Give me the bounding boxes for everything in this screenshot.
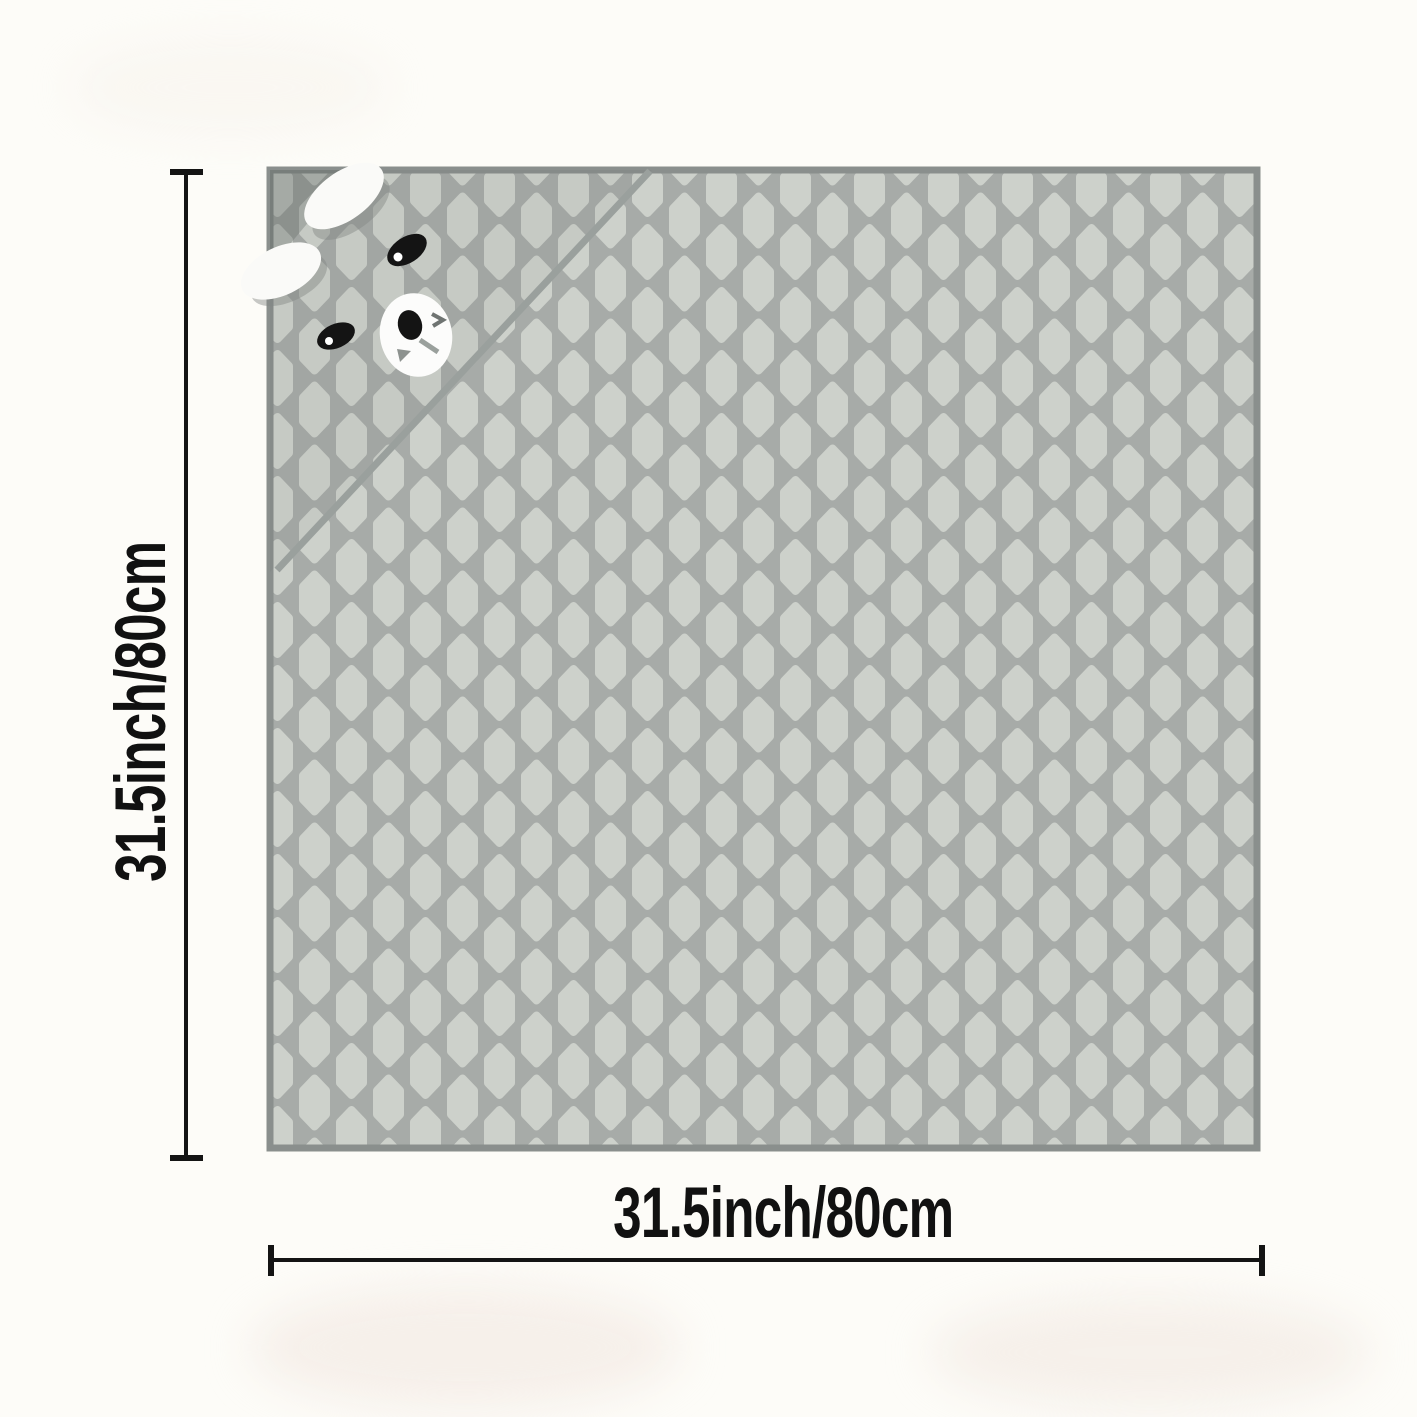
width-dimension-text: 31.5inch/80cm <box>613 1176 953 1252</box>
height-dimension-label: 31.5inch/80cm <box>102 462 182 962</box>
eye-right-glint <box>394 253 403 262</box>
width-dimension-label: 31.5inch/80cm <box>533 1176 1033 1252</box>
height-dimension-text: 31.5inch/80cm <box>102 542 182 882</box>
product-diagram: 31.5inch/80cm 31.5inch/80cm <box>0 0 1417 1417</box>
eye-left-glint <box>325 337 333 345</box>
